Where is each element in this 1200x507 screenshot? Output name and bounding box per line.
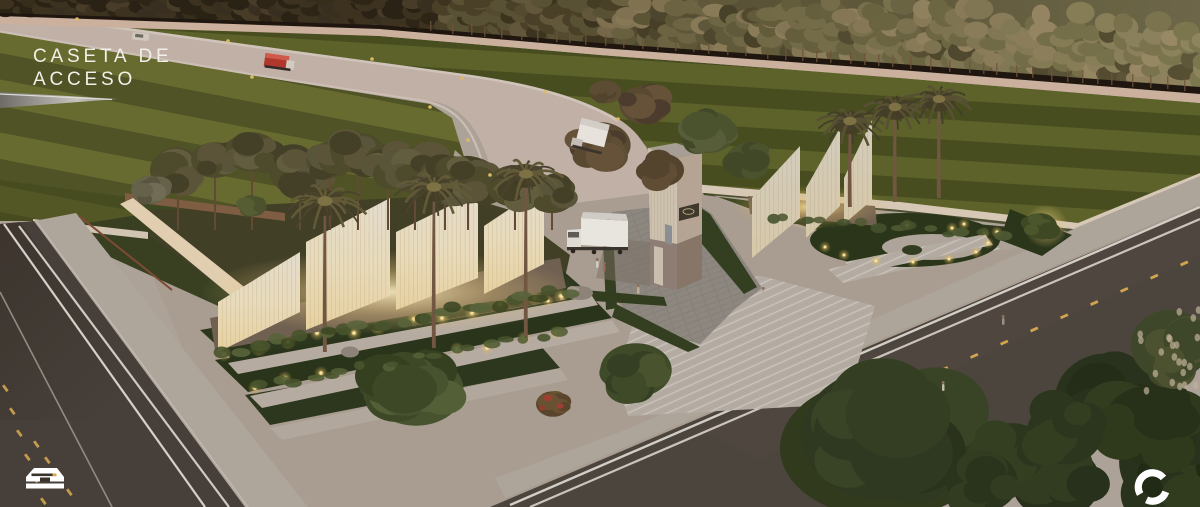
svg-text:ACCESO: ACCESO bbox=[33, 69, 136, 90]
svg-text:CASETA DE: CASETA DE bbox=[33, 46, 172, 67]
